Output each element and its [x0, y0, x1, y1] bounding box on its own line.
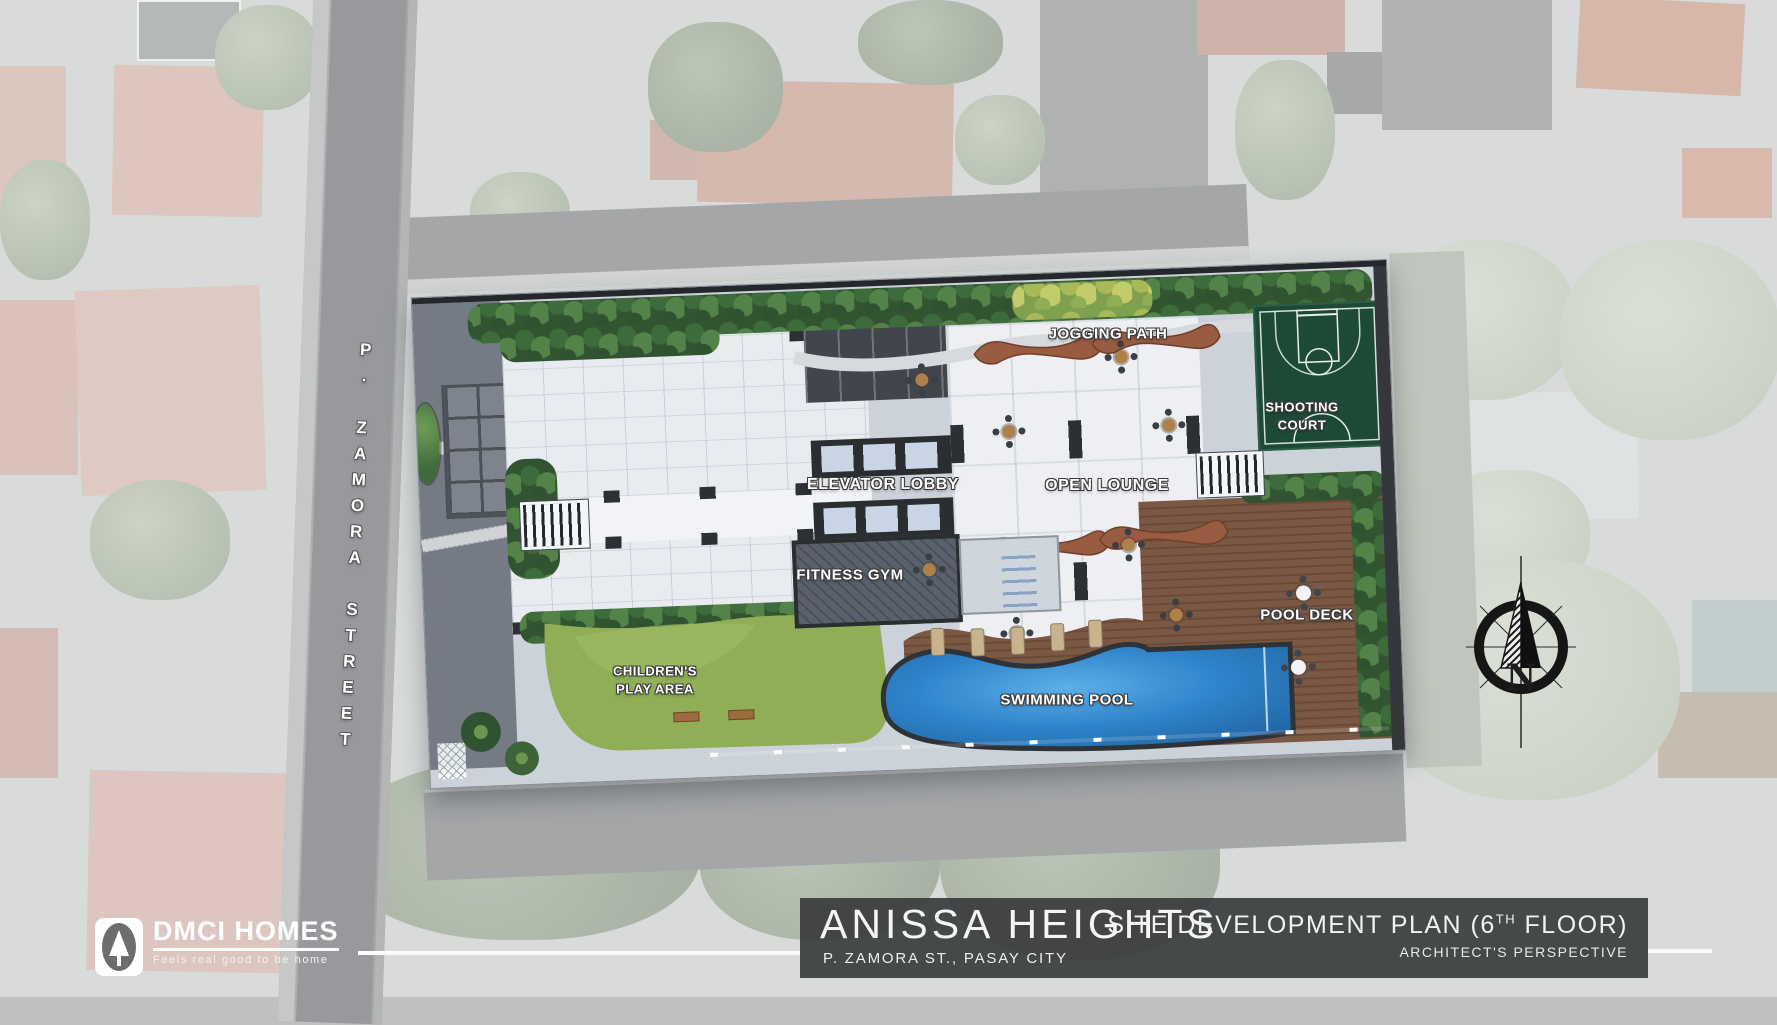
- label-shooting-court-1: SHOOTING: [1265, 400, 1338, 415]
- label-elevator-lobby: ELEVATOR LOBBY: [807, 476, 959, 494]
- pool-lounger: [1050, 623, 1065, 652]
- logo-text-block: DMCI HOMES Feels real good to be home: [153, 918, 339, 966]
- elevator-bank-top: [811, 435, 952, 478]
- pool-lounger: [1088, 619, 1103, 648]
- project-address: P. ZAMORA ST., PASAY CITY: [823, 950, 1068, 967]
- divider-line-right: [1648, 949, 1712, 953]
- pool-lounger: [970, 628, 985, 657]
- logo-tree-stem: [117, 954, 121, 966]
- label-childrens-play-2: PLAY AREA: [616, 682, 694, 697]
- dmci-homes-logo: DMCI HOMES Feels real good to be home: [95, 918, 339, 976]
- divider-line-left: [358, 951, 800, 955]
- site-plan: [411, 259, 1407, 789]
- label-shooting-court-2: COURT: [1278, 418, 1327, 433]
- label-fitness-gym: FITNESS GYM: [796, 567, 903, 584]
- plan-title: SITE DEVELOPMENT PLAN (6TH FLOOR): [1088, 911, 1628, 940]
- bench: [673, 711, 699, 722]
- label-childrens-play-1: CHILDREN'S: [613, 664, 697, 679]
- label-pool-deck: POOL DECK: [1260, 607, 1353, 624]
- compass-north-letter: N: [1507, 654, 1536, 699]
- label-swimming-pool: SWIMMING POOL: [1000, 692, 1133, 709]
- plan-title-superscript: TH: [1496, 912, 1516, 927]
- label-jogging-path: JOGGING PATH: [1049, 326, 1168, 343]
- stairwell-right: [1196, 451, 1264, 498]
- stairwell-left: [520, 500, 590, 551]
- bench: [728, 709, 754, 720]
- plan-subtitle: ARCHITECT'S PERSPECTIVE: [1088, 944, 1628, 960]
- lap-room: [959, 535, 1062, 615]
- label-open-lounge: OPEN LOUNGE: [1045, 477, 1169, 495]
- site-plan-page: { "plan": { "street_label": "P. ZAMORA S…: [0, 0, 1777, 997]
- logo-tagline: Feels real good to be home: [153, 954, 339, 966]
- logo-brand-name: DMCI HOMES: [153, 918, 339, 951]
- dmci-logo-icon: [95, 918, 143, 976]
- logo-tree: [109, 930, 129, 956]
- pool-lounger: [930, 628, 945, 657]
- pool-lounger: [1010, 627, 1025, 656]
- north-compass: N: [1448, 548, 1598, 763]
